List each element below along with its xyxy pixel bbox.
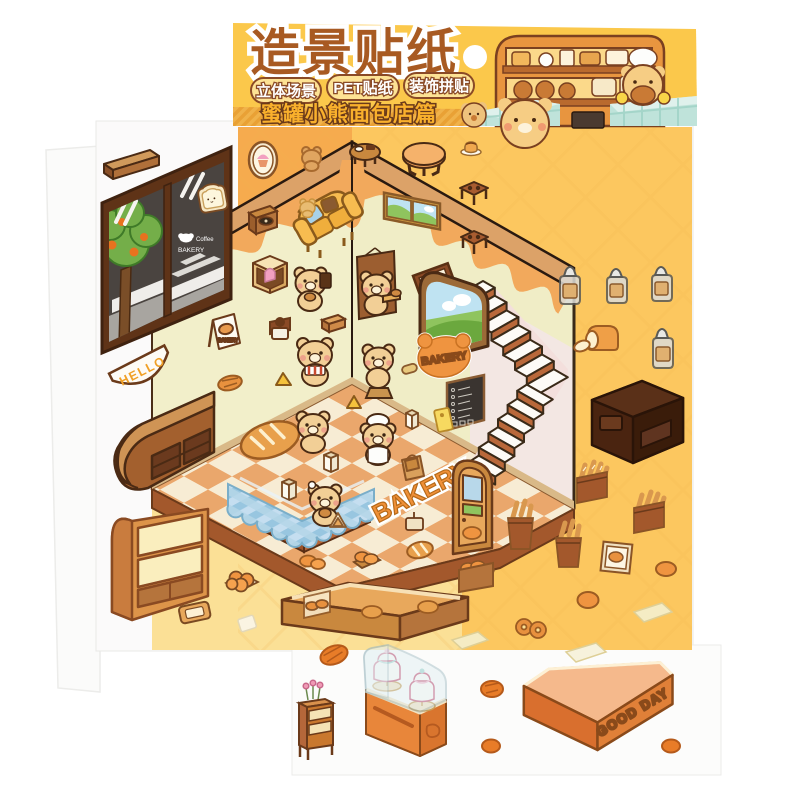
svg-text:BAKERY: BAKERY [218, 338, 239, 344]
svg-text:立体场景: 立体场景 [256, 82, 316, 100]
svg-text:蜜罐小熊面包店篇: 蜜罐小熊面包店篇 [261, 102, 437, 126]
svg-text:装饰拼贴: 装饰拼贴 [408, 77, 469, 95]
svg-text:PET贴纸: PET贴纸 [333, 79, 392, 97]
svg-text:Coffee: Coffee [196, 237, 214, 243]
svg-text:BAKERY: BAKERY [178, 247, 205, 254]
